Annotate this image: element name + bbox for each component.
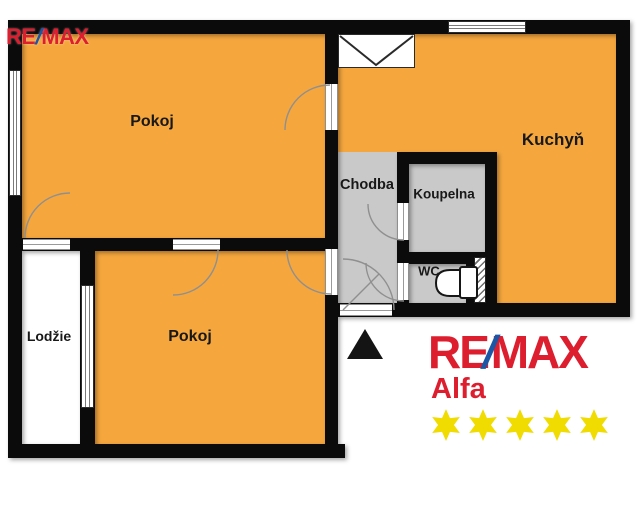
star-icon [429,408,463,442]
room-1-label: Pokoj [130,113,174,131]
bathroom-area [409,164,485,252]
remax-wm-max: MAX [41,24,88,49]
remax-logo-text: RE/MAX [428,329,611,375]
window-kitchen-north [448,21,526,33]
bathroom-label: Koupelna [413,187,475,202]
hallway-area [338,152,397,304]
star-icon [503,408,537,442]
loggia-area [22,251,80,444]
door-room1-hall [325,84,338,130]
door-wc [397,263,409,300]
remax-wm-re: RE [6,24,36,49]
remax-watermark-logo: RE/MAX [6,24,89,50]
door-bathroom [397,203,409,240]
door-room2-hallway [325,249,338,295]
window-room1-west [9,70,21,196]
built-in-cupboard [338,34,415,68]
door-room1-loggia [23,239,70,250]
loggia-label: Lodžie [27,328,71,344]
wc-label: WC [418,264,440,279]
room-2-area [95,251,325,444]
star-icon [540,408,574,442]
door-room1-room2 [173,239,220,250]
door-entrance [340,304,392,316]
star-rating [428,408,611,442]
shaft-hatch [474,257,486,303]
star-icon [577,408,611,442]
agency-name: Alfa [428,375,611,404]
window-room2-loggia [81,285,94,408]
kitchen-area-lower [497,152,616,303]
room-1-area [22,34,325,238]
remax-max: MAX [491,326,587,378]
room-2-label: Pokoj [168,328,212,346]
kitchen-label: Kuchyň [522,130,584,150]
star-icon [466,408,500,442]
remax-alfa-logo: RE/MAX Alfa [428,329,611,442]
north-arrow-icon [347,329,383,359]
hallway-label: Chodba [340,177,394,193]
floor-plan: Pokoj Kuchyň Chodba Koupelna WC Pokoj Lo… [0,0,640,507]
